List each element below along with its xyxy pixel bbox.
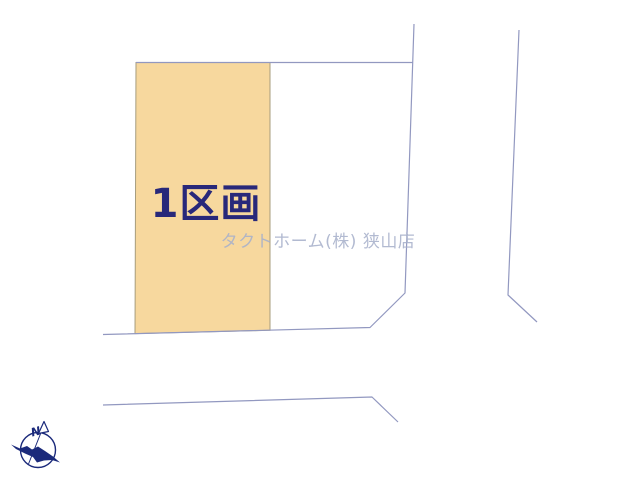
lot-map-drawing: 1区画 タクトホーム(株) 狭山店 N xyxy=(0,0,640,480)
lot-1-label: 1区画 xyxy=(151,181,262,227)
road-edge-far-east xyxy=(508,30,537,322)
compass-icon: N xyxy=(11,422,60,468)
compass-north-letter: N xyxy=(29,423,42,439)
watermark-dealer-name: タクトホーム(株) 狭山店 xyxy=(221,232,416,252)
plot-map-canvas: 1区画 タクトホーム(株) 狭山店 N xyxy=(0,0,640,480)
road-edge-south xyxy=(103,397,398,422)
